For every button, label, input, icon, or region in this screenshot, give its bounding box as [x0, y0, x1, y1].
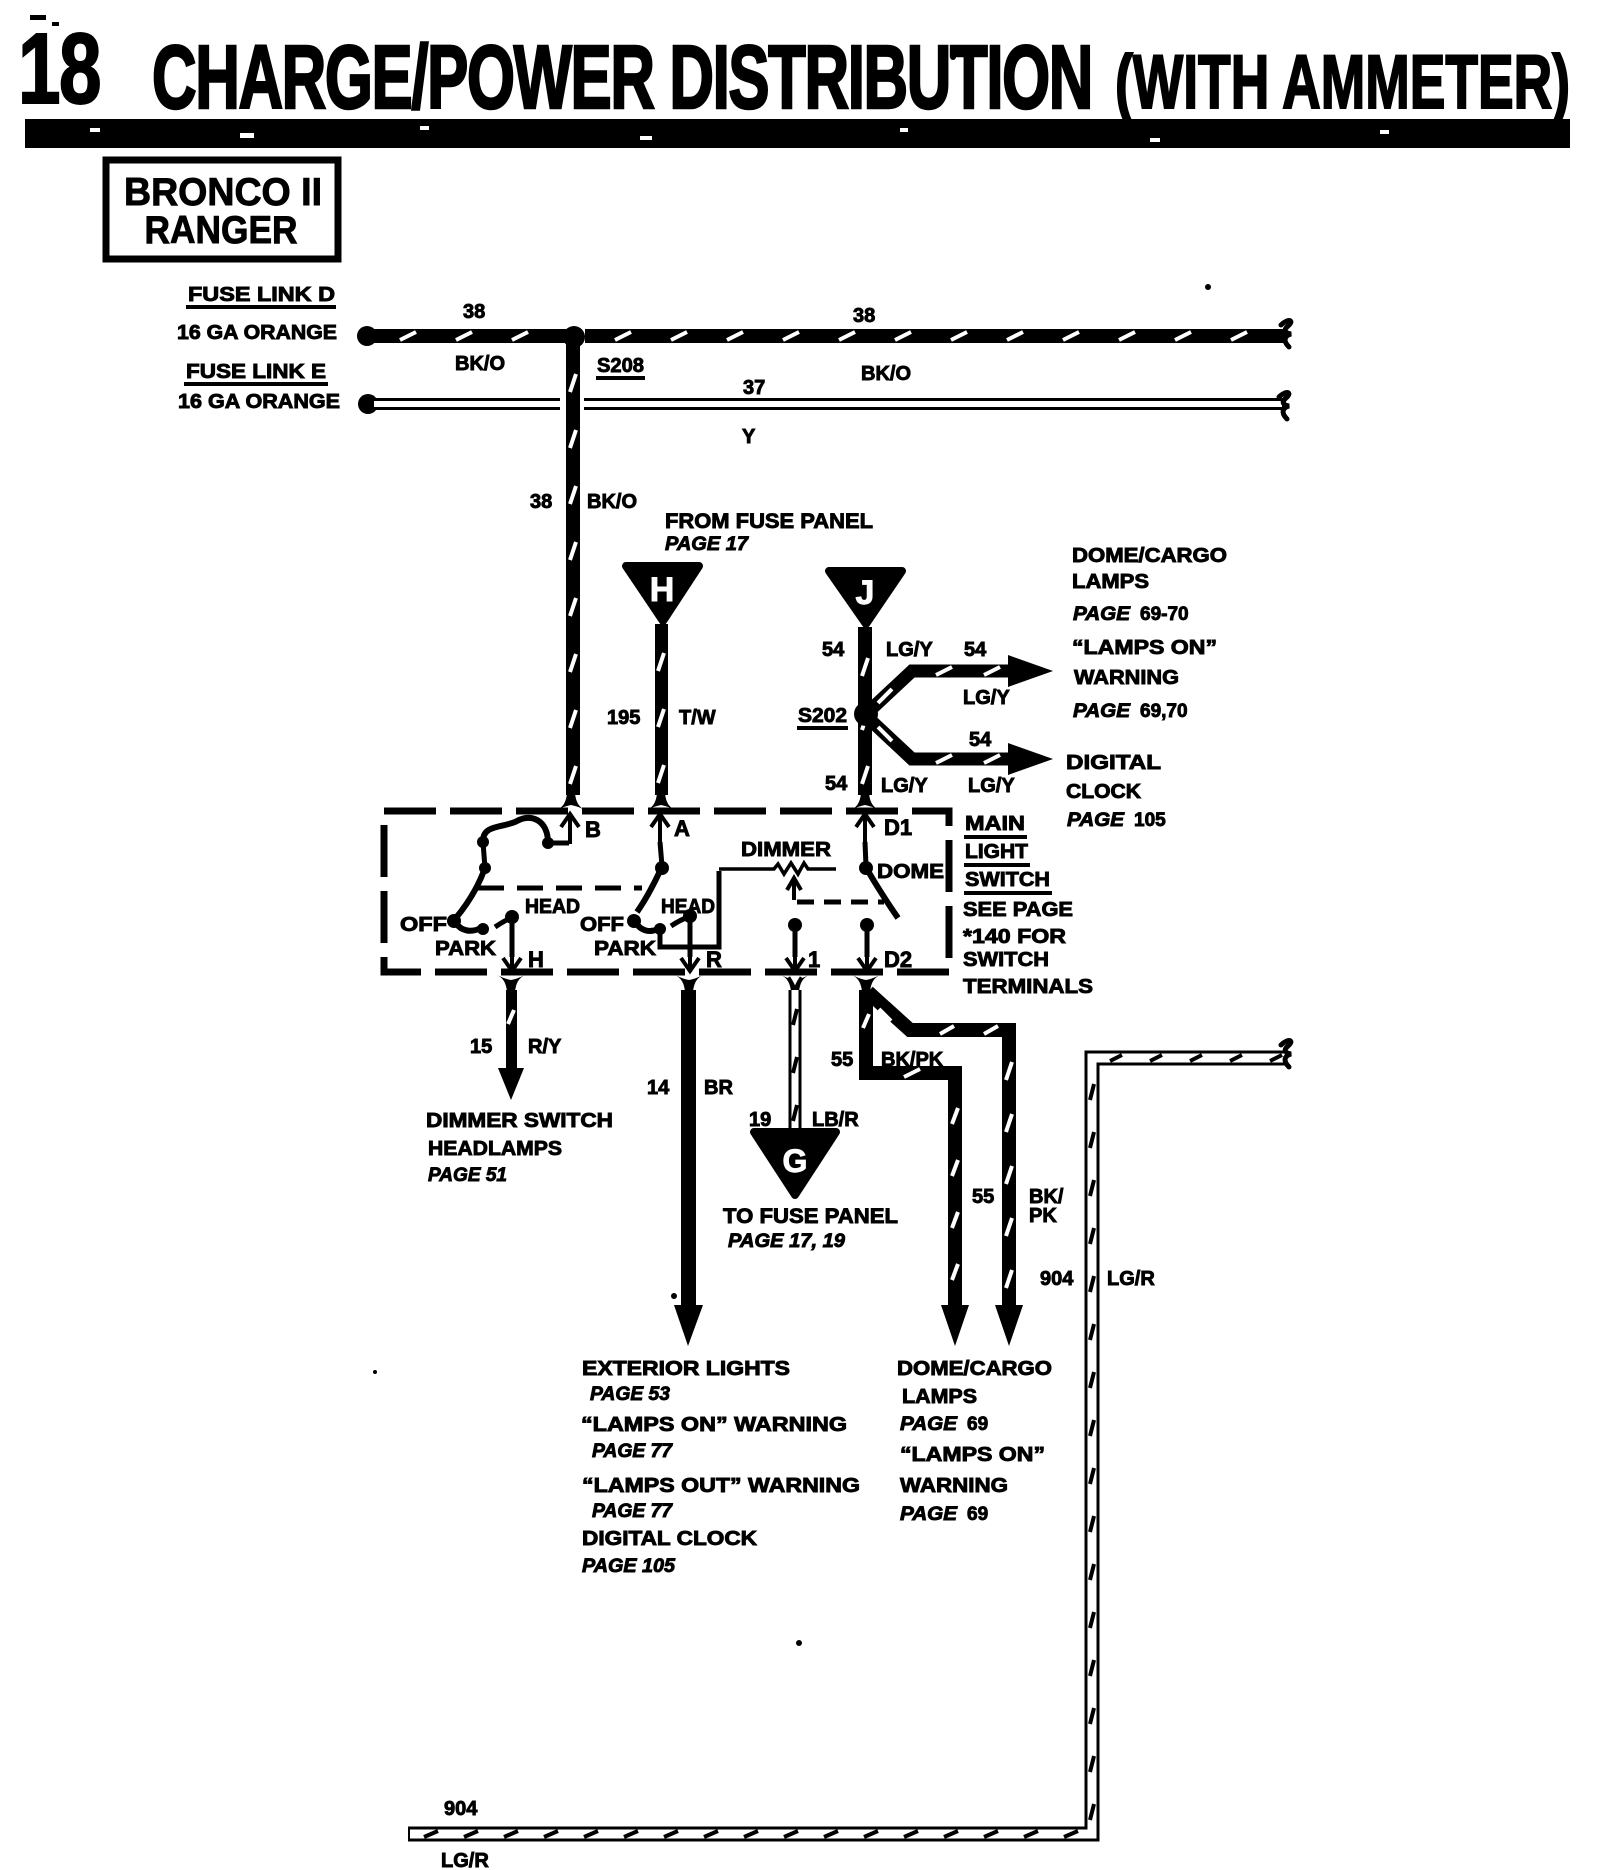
svg-text:FUSE LINK D: FUSE LINK D: [188, 284, 335, 306]
svg-text:PAGE 17, 19: PAGE 17, 19: [728, 1231, 845, 1252]
svg-text:54: 54: [822, 639, 845, 661]
svg-text:R: R: [706, 947, 722, 972]
svg-text:LAMPS: LAMPS: [902, 1386, 977, 1408]
svg-text:904: 904: [1040, 1268, 1074, 1290]
svg-text:BRONCO II: BRONCO II: [124, 171, 322, 214]
svg-text:H: H: [650, 571, 675, 609]
svg-text:TO FUSE PANEL: TO FUSE PANEL: [723, 1205, 898, 1228]
svg-text:195: 195: [607, 707, 640, 729]
svg-text:16 GA ORANGE: 16 GA ORANGE: [178, 391, 340, 413]
svg-text:LAMPS: LAMPS: [1072, 571, 1149, 593]
svg-text:DIGITAL CLOCK: DIGITAL CLOCK: [582, 1528, 758, 1550]
svg-text:38: 38: [463, 301, 485, 323]
svg-text:54: 54: [825, 773, 848, 795]
svg-text:“LAMPS ON” WARNING: “LAMPS ON” WARNING: [581, 1414, 847, 1436]
svg-text:PAGE 17: PAGE 17: [665, 534, 749, 555]
svg-text:DIGITAL: DIGITAL: [1066, 752, 1161, 774]
svg-text:69: 69: [967, 1414, 988, 1435]
svg-text:37: 37: [743, 377, 765, 399]
svg-text:55: 55: [972, 1186, 994, 1208]
svg-text:S202: S202: [798, 705, 847, 727]
svg-text:904: 904: [444, 1798, 478, 1820]
svg-text:38: 38: [853, 305, 875, 327]
svg-text:“LAMPS OUT” WARNING: “LAMPS OUT” WARNING: [582, 1475, 860, 1497]
svg-text:54: 54: [964, 639, 987, 661]
svg-text:TERMINALS: TERMINALS: [963, 976, 1093, 998]
svg-text:DIMMER: DIMMER: [741, 839, 832, 861]
svg-text:S208: S208: [597, 355, 644, 377]
svg-text:D2: D2: [884, 947, 912, 972]
svg-text:WARNING: WARNING: [1074, 667, 1179, 689]
svg-text:LG/R: LG/R: [441, 1850, 489, 1870]
svg-text:PAGE 51: PAGE 51: [428, 1165, 507, 1186]
svg-text:LG/Y: LG/Y: [886, 639, 933, 661]
svg-text:DOME/CARGO: DOME/CARGO: [1072, 545, 1227, 567]
svg-text:PAGE 77: PAGE 77: [592, 1441, 673, 1462]
svg-text:B: B: [585, 817, 601, 842]
svg-text:69-70: 69-70: [1140, 604, 1189, 625]
svg-text:EXTERIOR LIGHTS: EXTERIOR LIGHTS: [582, 1358, 790, 1380]
svg-text:14: 14: [647, 1077, 670, 1099]
svg-text:PAGE 77: PAGE 77: [592, 1501, 673, 1522]
svg-text:LB/R: LB/R: [812, 1109, 859, 1131]
svg-text:FROM FUSE PANEL: FROM FUSE PANEL: [665, 510, 873, 533]
svg-text:BK/O: BK/O: [587, 491, 637, 513]
svg-text:BK/O: BK/O: [861, 363, 911, 385]
svg-text:PAGE: PAGE: [900, 1504, 958, 1525]
svg-text:H: H: [528, 947, 544, 972]
svg-text:PAGE: PAGE: [1073, 701, 1131, 722]
svg-text:55: 55: [831, 1049, 853, 1071]
svg-text:OFF: OFF: [400, 914, 447, 936]
svg-text:Y: Y: [742, 426, 756, 448]
svg-text:G: G: [783, 1143, 808, 1179]
svg-text:SWITCH: SWITCH: [963, 949, 1049, 971]
svg-text:*140 FOR: *140 FOR: [963, 926, 1067, 948]
svg-text:69: 69: [967, 1504, 988, 1525]
svg-text:PARK: PARK: [594, 938, 657, 960]
svg-text:LIGHT: LIGHT: [965, 841, 1028, 863]
svg-text:105: 105: [1134, 810, 1166, 831]
svg-text:BK/O: BK/O: [455, 353, 505, 375]
svg-text:FUSE LINK E: FUSE LINK E: [186, 361, 326, 383]
svg-text:D1: D1: [884, 815, 912, 840]
svg-text:(WITH AMMETER): (WITH AMMETER): [1115, 40, 1570, 125]
svg-text:T/W: T/W: [679, 707, 716, 729]
svg-text:LG/R: LG/R: [1107, 1268, 1155, 1290]
svg-text:MAIN: MAIN: [965, 813, 1025, 835]
svg-text:SEE PAGE: SEE PAGE: [963, 899, 1073, 921]
svg-text:HEAD: HEAD: [525, 896, 580, 918]
svg-text:LG/Y: LG/Y: [963, 687, 1010, 709]
svg-text:OFF: OFF: [580, 914, 624, 936]
svg-text:DOME: DOME: [877, 861, 944, 883]
svg-text:PK: PK: [1029, 1205, 1057, 1227]
svg-text:PARK: PARK: [435, 938, 497, 960]
svg-text:RANGER: RANGER: [145, 209, 298, 252]
svg-text:“LAMPS ON”: “LAMPS ON”: [900, 1444, 1045, 1466]
svg-text:15: 15: [470, 1036, 492, 1058]
svg-text:PAGE 53: PAGE 53: [590, 1384, 670, 1405]
svg-text:J: J: [856, 574, 875, 612]
svg-text:1: 1: [808, 947, 820, 972]
svg-text:HEAD: HEAD: [661, 896, 715, 918]
svg-text:69,70: 69,70: [1140, 701, 1188, 722]
svg-text:LG/Y: LG/Y: [968, 775, 1015, 797]
svg-text:19: 19: [749, 1109, 771, 1131]
svg-text:PAGE 105: PAGE 105: [582, 1556, 675, 1577]
svg-text:54: 54: [969, 729, 992, 751]
svg-text:LG/Y: LG/Y: [881, 775, 928, 797]
svg-text:CLOCK: CLOCK: [1066, 781, 1142, 803]
svg-text:SWITCH: SWITCH: [965, 869, 1050, 891]
svg-text:PAGE: PAGE: [1073, 604, 1131, 625]
svg-text:16 GA ORANGE: 16 GA ORANGE: [177, 322, 337, 344]
svg-text:PAGE: PAGE: [900, 1414, 958, 1435]
svg-text:A: A: [674, 816, 690, 841]
svg-text:18: 18: [18, 13, 100, 125]
svg-text:38: 38: [530, 491, 552, 513]
svg-text:R/Y: R/Y: [528, 1036, 562, 1058]
svg-text:“LAMPS ON”: “LAMPS ON”: [1072, 637, 1217, 659]
svg-text:CHARGE/POWER DISTRIBUTION: CHARGE/POWER DISTRIBUTION: [152, 28, 1092, 128]
svg-text:BR: BR: [704, 1077, 733, 1099]
svg-text:PAGE: PAGE: [1067, 810, 1125, 831]
svg-text:HEADLAMPS: HEADLAMPS: [428, 1138, 562, 1160]
svg-text:DOME/CARGO: DOME/CARGO: [897, 1358, 1052, 1380]
svg-text:BK/PK: BK/PK: [881, 1049, 944, 1071]
svg-text:DIMMER SWITCH: DIMMER SWITCH: [426, 1110, 613, 1132]
svg-text:WARNING: WARNING: [900, 1475, 1008, 1497]
